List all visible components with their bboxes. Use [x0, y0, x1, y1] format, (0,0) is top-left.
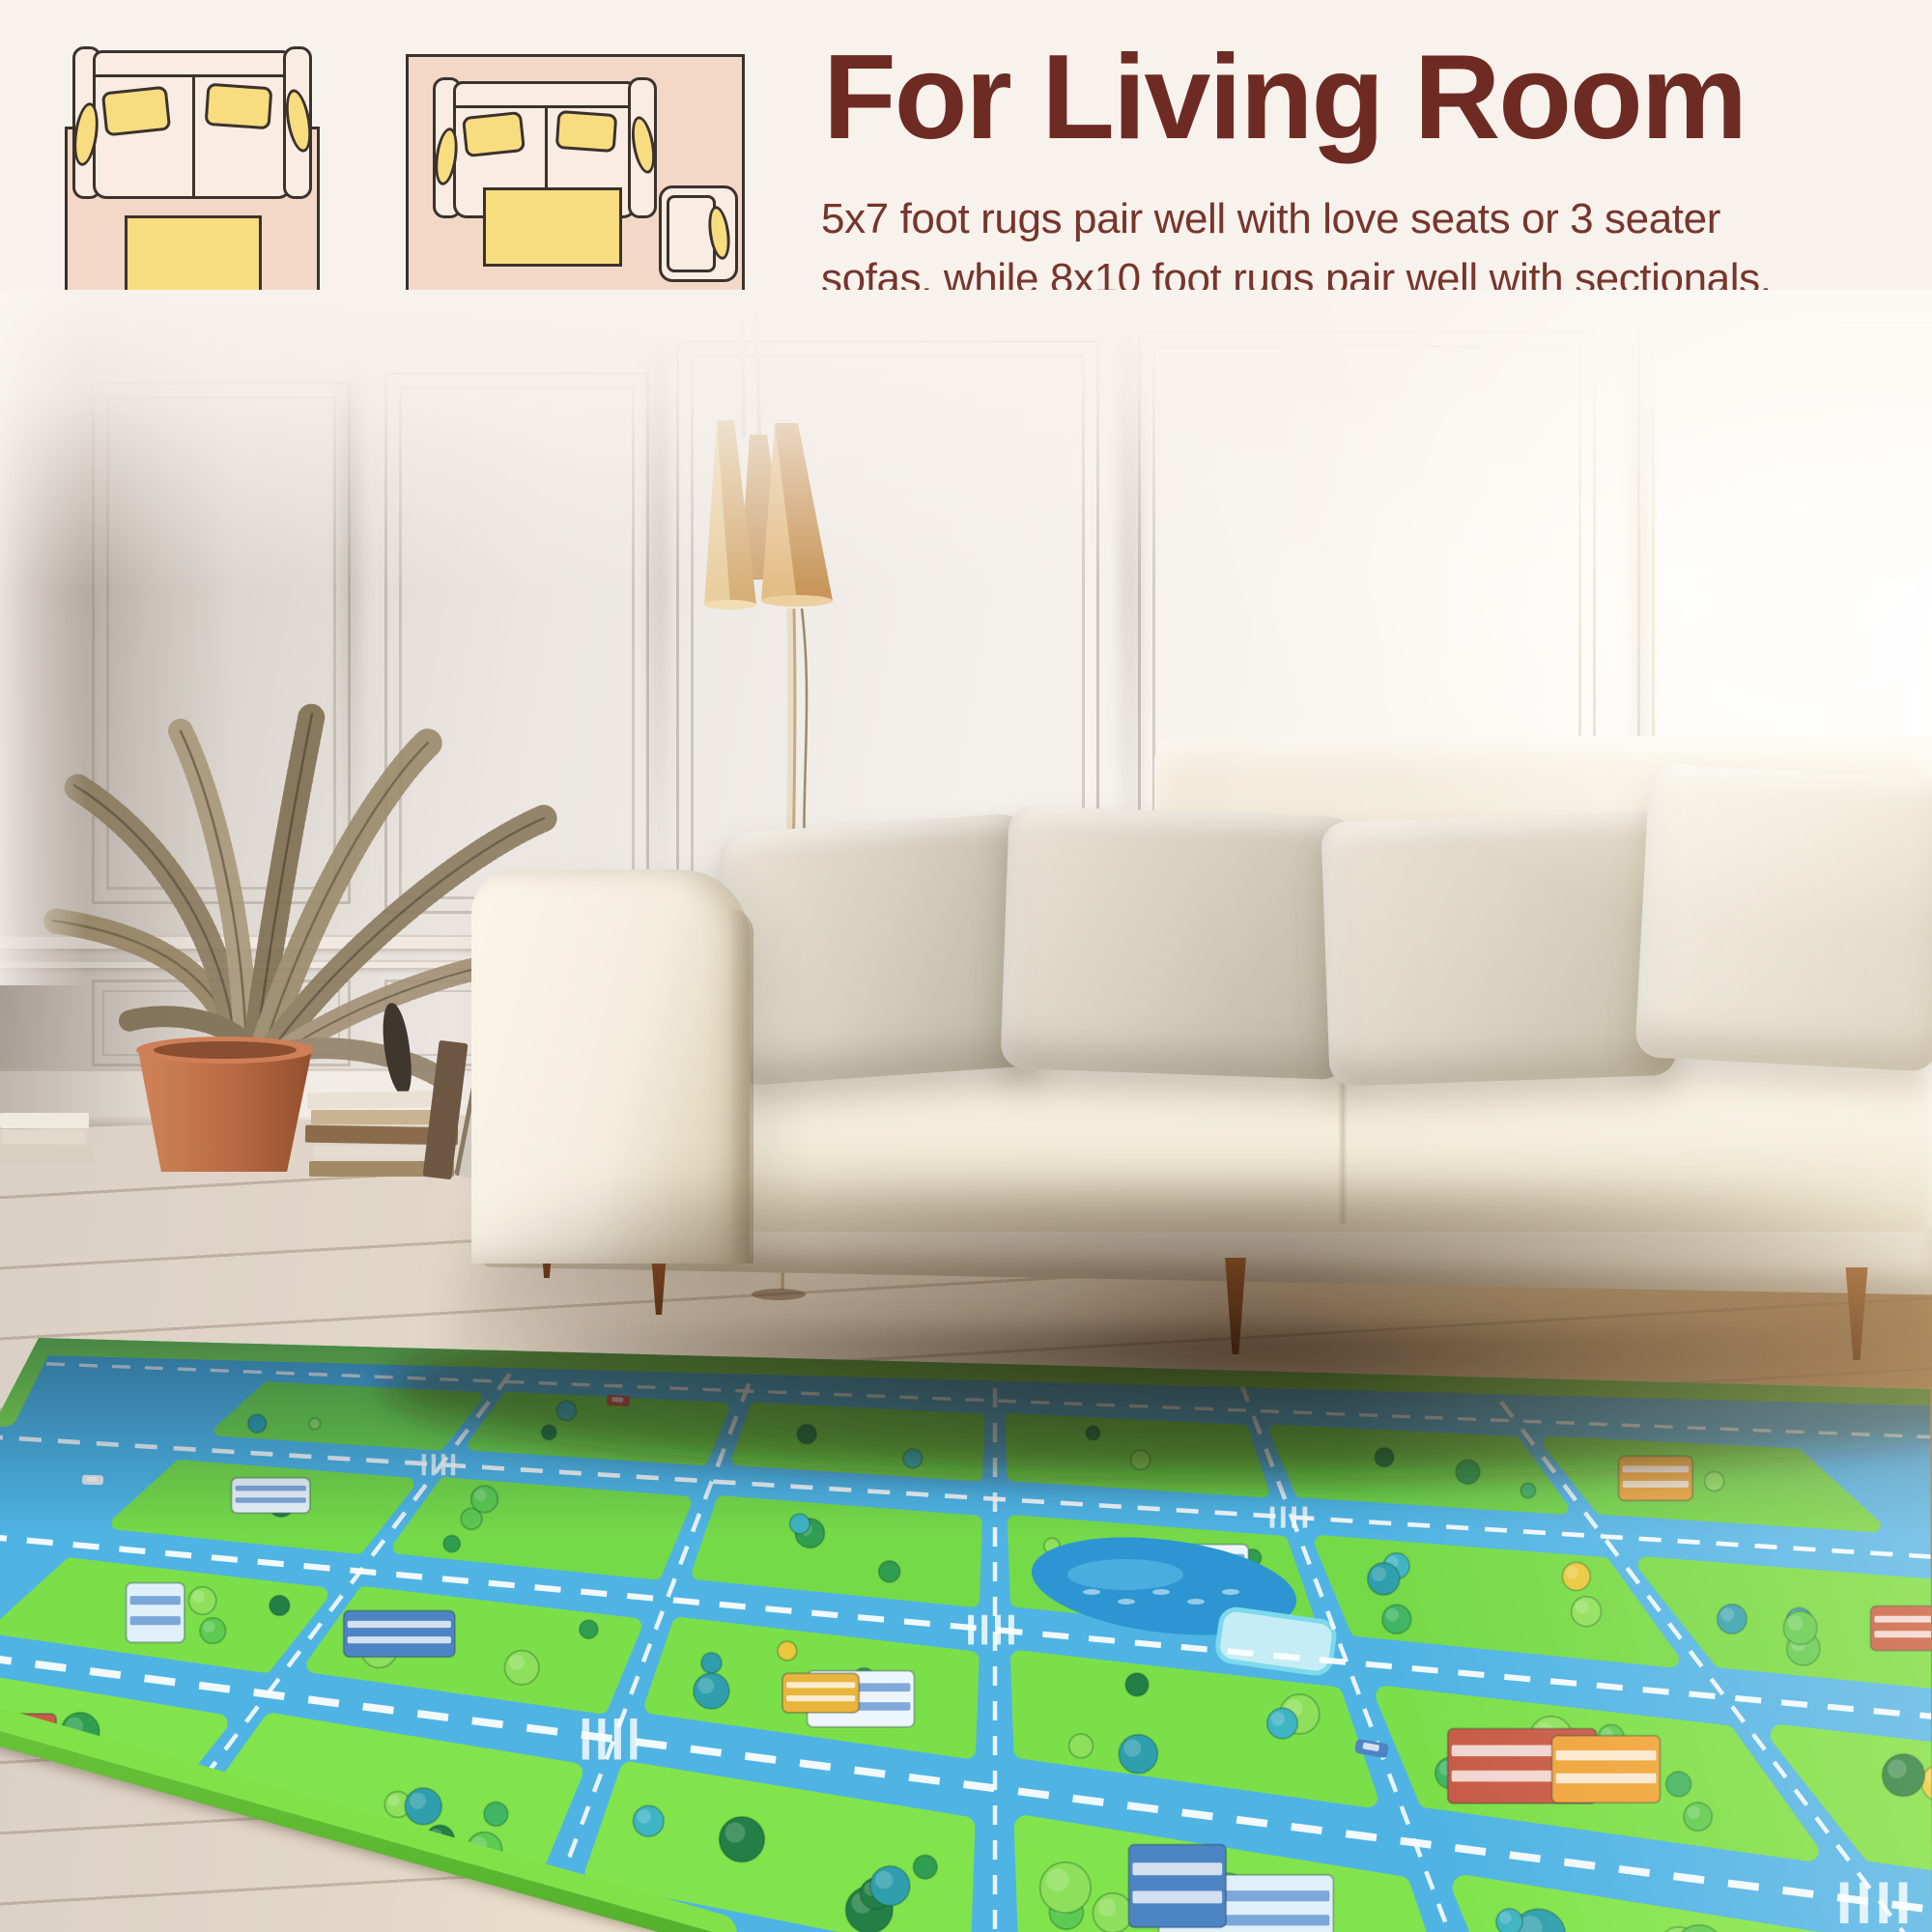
- throw-pillow-icon: [462, 111, 526, 157]
- coffee-table-icon: [125, 215, 262, 295]
- product-size-guide-image: 5x7 8x10 For Living Room 5x7 foot rugs p…: [0, 0, 1932, 1932]
- diagram-5x7-layout: [65, 46, 326, 322]
- living-room-photo: [0, 290, 1932, 1932]
- throw-pillow-icon: [101, 86, 171, 137]
- throw-pillow-icon: [555, 110, 618, 153]
- description-line-1: 5x7 foot rugs pair well with love seats …: [821, 189, 1772, 249]
- page-title: For Living Room: [823, 29, 1746, 166]
- coffee-table-icon: [483, 187, 622, 267]
- throw-pillow-icon: [205, 83, 273, 130]
- sunlight-glow: [0, 290, 1932, 1932]
- armchair-top-view-icon: [659, 185, 738, 282]
- sofa-top-view-icon: [72, 46, 312, 199]
